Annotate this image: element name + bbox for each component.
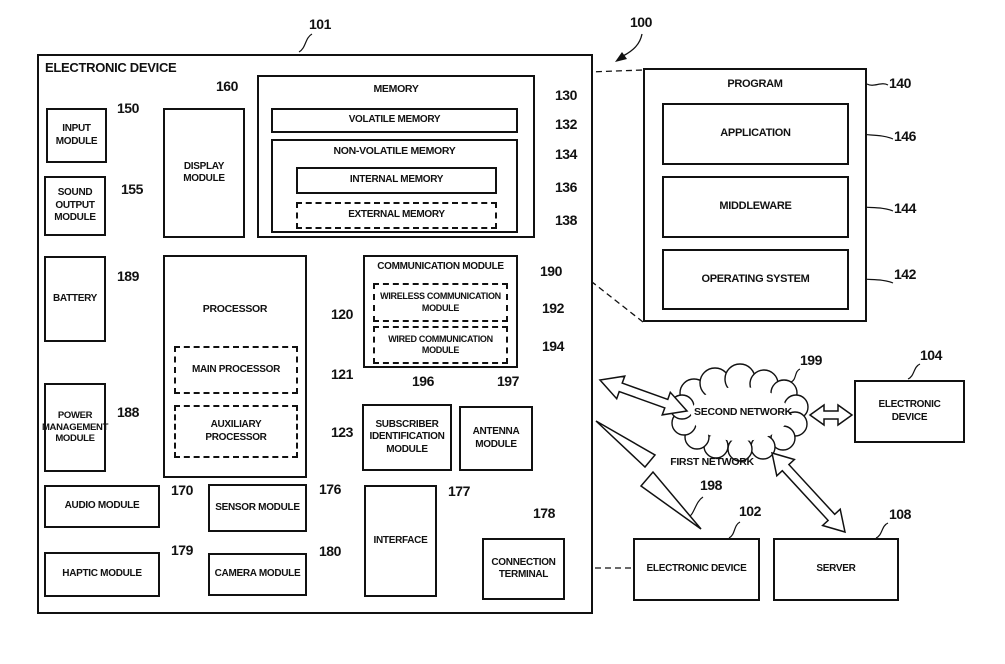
external-memory-box: EXTERNAL MEMORY <box>296 202 497 229</box>
ref-180: 180 <box>319 543 341 559</box>
wired-communication-module-box: WIRED COMMUNICATION MODULE <box>373 326 508 364</box>
program-box: PROGRAM APPLICATION MIDDLEWARE OPERATING… <box>643 68 867 322</box>
server-box: SERVER <box>773 538 899 601</box>
ref-138: 138 <box>555 212 577 228</box>
input-module-box: INPUT MODULE <box>46 108 107 163</box>
processor-box: PROCESSOR MAIN PROCESSOR AUXILIARY PROCE… <box>163 255 307 478</box>
connection-terminal-box: CONNECTION TERMINAL <box>482 538 565 600</box>
ref-192: 192 <box>542 300 564 316</box>
ref-194: 194 <box>542 338 564 354</box>
ref-198: 198 <box>700 477 722 493</box>
internal-memory-box: INTERNAL MEMORY <box>296 167 497 194</box>
ref-197: 197 <box>497 373 519 389</box>
ref-140: 140 <box>889 75 911 91</box>
interface-box: INTERFACE <box>364 485 437 597</box>
ref-196: 196 <box>412 373 434 389</box>
processor-title: PROCESSOR <box>165 303 305 316</box>
ref-190: 190 <box>540 263 562 279</box>
volatile-memory-box: VOLATILE MEMORY <box>271 108 518 133</box>
electronic-device-box: ELECTRONIC DEVICE INPUT MODULE SOUND OUT… <box>37 54 593 614</box>
ref-130: 130 <box>555 87 577 103</box>
leader-line <box>876 523 888 538</box>
first-network-bolt-upper <box>596 421 655 467</box>
ref-121: 121 <box>331 366 353 382</box>
haptic-module-box: HAPTIC MODULE <box>44 552 160 597</box>
main-processor-box: MAIN PROCESSOR <box>174 346 298 394</box>
memory-box: MEMORY VOLATILE MEMORY NON-VOLATILE MEMO… <box>257 75 535 238</box>
ref-144: 144 <box>894 200 916 216</box>
subscriber-identification-module-box: SUBSCRIBER IDENTIFICATION MODULE <box>362 404 452 471</box>
memory-title: MEMORY <box>259 83 533 96</box>
ref-104: 104 <box>920 347 942 363</box>
leader-line <box>791 369 800 382</box>
operating-system-box: OPERATING SYSTEM <box>662 249 849 310</box>
leader-line <box>867 84 888 85</box>
first-network-bolt-lower <box>641 472 701 529</box>
figure-ref-arrowhead <box>615 52 627 62</box>
electronic-device-104-box: ELECTRONIC DEVICE <box>854 380 965 443</box>
ref-160: 160 <box>216 78 238 94</box>
ref-177: 177 <box>448 483 470 499</box>
middleware-box: MIDDLEWARE <box>662 176 849 238</box>
ref-155: 155 <box>121 181 143 197</box>
ref-134: 134 <box>555 146 577 162</box>
ref-102: 102 <box>739 503 761 519</box>
ref-120: 120 <box>331 306 353 322</box>
ref-101: 101 <box>309 16 331 32</box>
communication-module-title: COMMUNICATION MODULE <box>365 261 516 274</box>
non-volatile-memory-title: NON-VOLATILE MEMORY <box>273 145 516 158</box>
ref-100: 100 <box>630 14 652 30</box>
program-title: PROGRAM <box>645 78 865 92</box>
battery-box: BATTERY <box>44 256 106 342</box>
patent-figure: ELECTRONIC DEVICE INPUT MODULE SOUND OUT… <box>0 0 1005 664</box>
sound-output-module-box: SOUND OUTPUT MODULE <box>44 176 106 236</box>
ref-189: 189 <box>117 268 139 284</box>
ref-123: 123 <box>331 424 353 440</box>
leader-line <box>299 34 312 52</box>
second-network-label: SECOND NETWORK <box>686 406 800 418</box>
figure-ref-arrow <box>623 34 642 56</box>
ref-179: 179 <box>171 542 193 558</box>
device-to-second-network-arrow <box>600 376 687 415</box>
display-module-box: DISPLAY MODULE <box>163 108 245 238</box>
wireless-communication-module-box: WIRELESS COMMUNICATION MODULE <box>373 283 508 322</box>
application-box: APPLICATION <box>662 103 849 165</box>
leader-line <box>729 522 740 538</box>
ref-176: 176 <box>319 481 341 497</box>
ref-132: 132 <box>555 116 577 132</box>
ref-199: 199 <box>800 352 822 368</box>
ref-146: 146 <box>894 128 916 144</box>
first-network-label: FIRST NETWORK <box>664 456 760 468</box>
second-network-to-server-arrow <box>772 453 845 532</box>
ref-142: 142 <box>894 266 916 282</box>
second-network-to-device104-arrow <box>810 405 852 425</box>
audio-module-box: AUDIO MODULE <box>44 485 160 528</box>
ref-178: 178 <box>533 505 555 521</box>
communication-module-box: COMMUNICATION MODULE WIRELESS COMMUNICAT… <box>363 255 518 368</box>
auxiliary-processor-box: AUXILIARY PROCESSOR <box>174 405 298 458</box>
sensor-module-box: SENSOR MODULE <box>208 484 307 532</box>
power-management-module-box: POWER MANAGEMENT MODULE <box>44 383 106 472</box>
electronic-device-102-box: ELECTRONIC DEVICE <box>633 538 760 601</box>
non-volatile-memory-box: NON-VOLATILE MEMORY INTERNAL MEMORY EXTE… <box>271 139 518 233</box>
ref-150: 150 <box>117 100 139 116</box>
ref-136: 136 <box>555 179 577 195</box>
leader-line <box>908 364 920 379</box>
electronic-device-title: ELECTRONIC DEVICE <box>45 60 176 76</box>
ref-170: 170 <box>171 482 193 498</box>
camera-module-box: CAMERA MODULE <box>208 553 307 596</box>
ref-188: 188 <box>117 404 139 420</box>
antenna-module-box: ANTENNA MODULE <box>459 406 533 471</box>
ref-108: 108 <box>889 506 911 522</box>
